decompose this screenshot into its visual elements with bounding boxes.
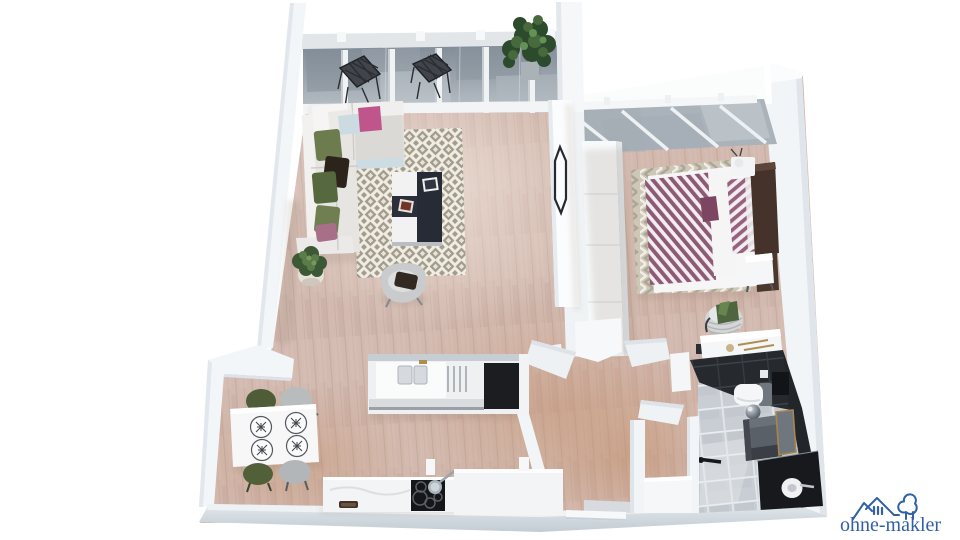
- svg-text:ohne-makler: ohne-makler: [840, 514, 941, 536]
